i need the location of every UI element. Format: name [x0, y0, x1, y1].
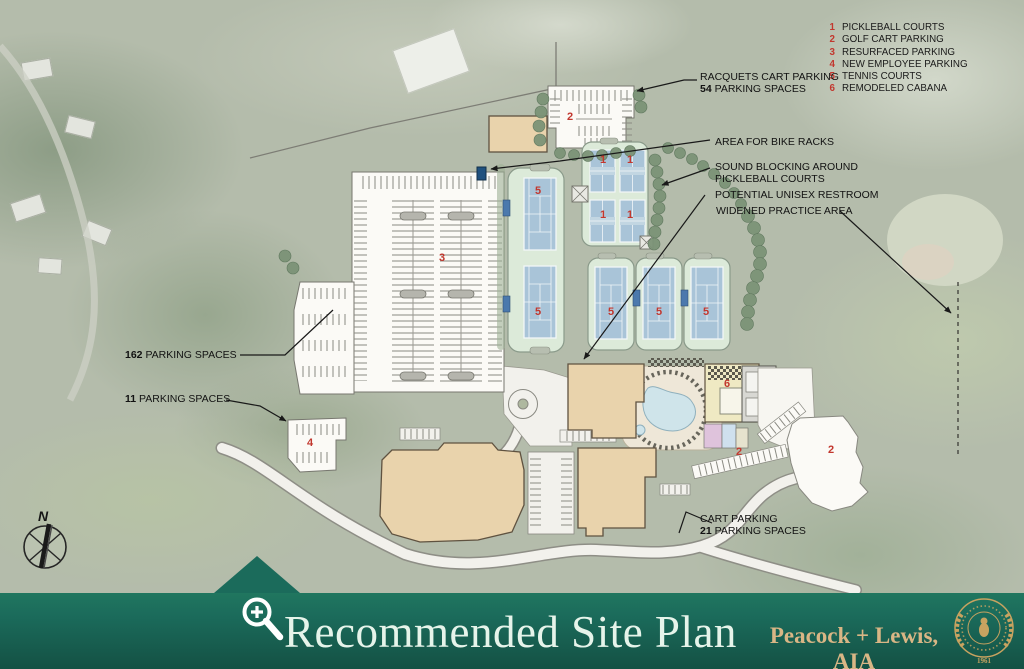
callout-11-spaces: 11 PARKING SPACES [125, 393, 230, 405]
employee-parking-lot [288, 418, 346, 472]
marker-cabana: 6 [724, 378, 730, 390]
architect-credit: Peacock + Lewis, AIA [756, 623, 952, 669]
marker-tennis-court: 5 [703, 306, 709, 318]
marker-cart-parking: 2 [736, 446, 742, 458]
callout-162-spaces: 162 PARKING SPACES [125, 349, 237, 361]
marker-golf-cart-parking: 2 [567, 111, 573, 123]
callout-unisex-restroom: POTENTIAL UNISEX RESTROOM [715, 189, 879, 201]
marker-golf-cart-area: 2 [828, 444, 834, 456]
architect-seal: 1961 [950, 597, 1018, 667]
callout-racquets-parking: RACQUETS CART PARKING 54 PARKING SPACES [700, 71, 839, 95]
legend-item: 6REMODELED CABANA [826, 83, 968, 95]
seal-year: 1961 [977, 657, 992, 665]
callout-sound-blocking: SOUND BLOCKING AROUNDPICKLEBALL COURTS [715, 161, 858, 185]
callout-practice-area: WIDENED PRACTICE AREA [716, 205, 853, 217]
marker-pickleball-court: 1 [627, 209, 633, 221]
marker-tennis-court: 5 [535, 185, 541, 197]
marker-pickleball-court: 1 [627, 154, 633, 166]
marker-tennis-court: 5 [608, 306, 614, 318]
pool-cabana-complex [622, 358, 776, 450]
page-title: Recommended Site Plan [284, 606, 737, 658]
compass-rose [24, 524, 66, 568]
marker-tennis-court: 5 [656, 306, 662, 318]
legend-item: 3RESURFACED PARKING [826, 47, 968, 59]
fitness-building [568, 364, 644, 438]
marker-tennis-court: 5 [535, 306, 541, 318]
marker-pickleball-court: 1 [600, 209, 606, 221]
callout-cart-parking: CART PARKING 21 PARKING SPACES [700, 513, 806, 537]
legend-item: 2GOLF CART PARKING [826, 34, 968, 46]
east-building [578, 448, 656, 536]
legend-item: 1PICKLEBALL COURTS [826, 22, 968, 34]
magnifier-zoom-icon [236, 596, 288, 648]
callout-bike-racks: AREA FOR BIKE RACKS [715, 136, 834, 148]
racquets-cart-parking-lot [548, 86, 634, 148]
bike-rack-area [477, 167, 486, 180]
legend-item: 4NEW EMPLOYEE PARKING [826, 59, 968, 71]
marker-employee-parking: 4 [307, 437, 313, 449]
site-plan-screenshot: 1PICKLEBALL COURTS 2GOLF CART PARKING 3R… [0, 0, 1024, 669]
legend-item: 5TENNIS COURTS [826, 71, 968, 83]
marker-pickleball-court: 1 [600, 154, 606, 166]
marker-resurfaced-parking: 3 [439, 252, 445, 264]
aerial-map: 1PICKLEBALL COURTS 2GOLF CART PARKING 3R… [0, 0, 1024, 593]
compass-north-label: N [38, 508, 48, 524]
main-clubhouse [380, 443, 524, 542]
golf-cart-parking [787, 416, 868, 511]
resurfaced-parking-lot [294, 172, 504, 394]
legend: 1PICKLEBALL COURTS 2GOLF CART PARKING 3R… [826, 22, 968, 96]
footer-pointer-triangle [214, 556, 300, 593]
